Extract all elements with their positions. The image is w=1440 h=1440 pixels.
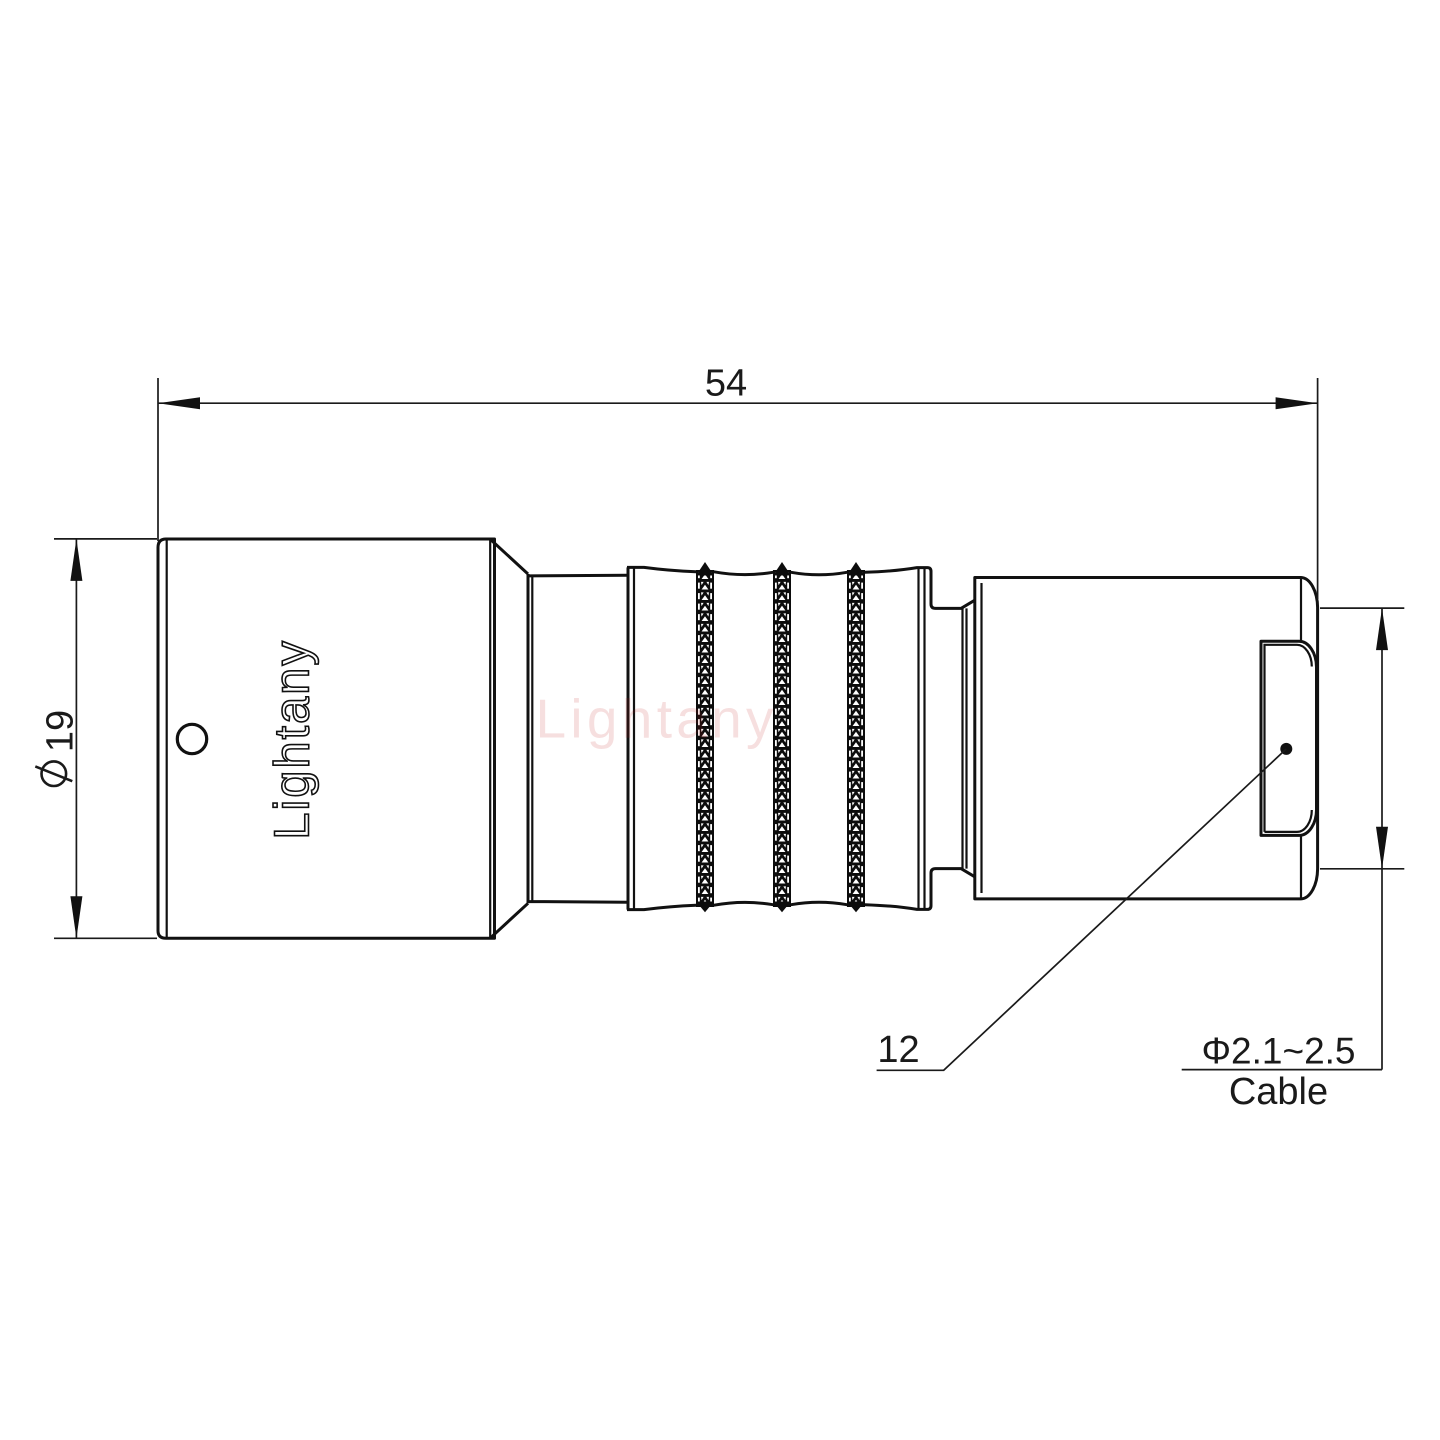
svg-text:54: 54 (705, 363, 747, 405)
svg-text:19: 19 (40, 710, 82, 752)
svg-text:Cable: Cable (1229, 1071, 1328, 1113)
svg-text:Φ2.1~2.5: Φ2.1~2.5 (1202, 1030, 1356, 1071)
svg-text:12: 12 (877, 1029, 919, 1071)
svg-text:Lightany: Lightany (266, 639, 320, 839)
svg-text:Lightany: Lightany (536, 688, 778, 750)
